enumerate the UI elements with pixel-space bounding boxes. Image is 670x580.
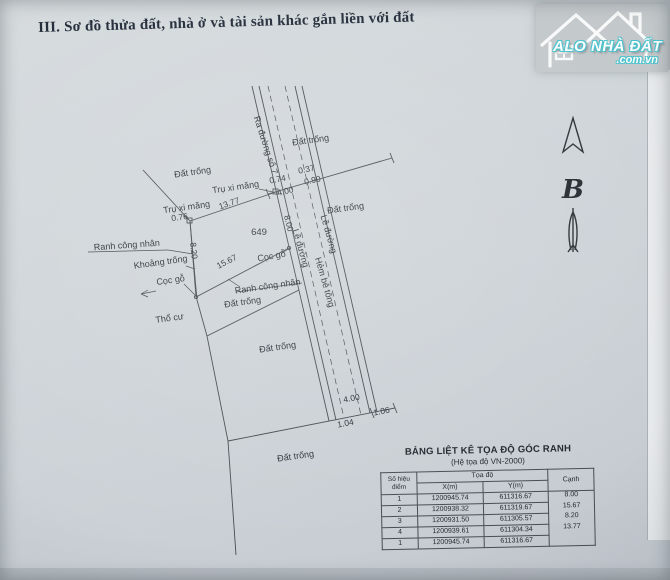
cell-point: 2 — [381, 505, 417, 517]
coordinate-table: Số hiệu điểm Tọa độ Cạnh X(m) Y(m) 1 120… — [380, 468, 596, 550]
label-tru-xi-mang: Trụ xi măng — [212, 179, 260, 195]
measure-8-00: 8.00 — [282, 214, 296, 233]
col-header-point: Số hiệu điểm — [381, 472, 418, 495]
measure-1-06: 1.06 — [372, 405, 390, 418]
label-dat-trong: Đất trống — [224, 295, 262, 310]
label-ra-duong-so-7: Ra đường số 7 — [252, 115, 280, 176]
edge-value: 13.77 — [552, 522, 593, 533]
measure-0-76: 0.76 — [171, 211, 189, 223]
measure-13-77: 13.77 — [217, 195, 241, 211]
boundary-lines — [143, 170, 299, 555]
label-dat-trong: Đất trống — [327, 201, 365, 216]
label-coc-go: Cọc gỗ — [257, 249, 287, 264]
label-coc-go: Cọc gỗ — [156, 273, 186, 287]
label-tho-cu: Thổ cư — [155, 311, 185, 325]
scanned-land-document: III. Sơ đồ thửa đất, nhà ở và tài sản kh… — [0, 0, 670, 580]
label-dat-trong: Đất trống — [277, 449, 315, 464]
cell-point: 1 — [382, 538, 418, 550]
measure-0-74: 0.74 — [268, 173, 286, 186]
measure-1-04: 1.04 — [336, 417, 354, 430]
label-dat-trong: Đất trống — [259, 340, 297, 355]
cell-y: 611316.67 — [484, 535, 550, 547]
measure-8-20: 8.20 — [188, 242, 200, 260]
cell-point: 4 — [382, 527, 418, 539]
cell-point: 3 — [382, 516, 418, 528]
cell-point: 1 — [381, 494, 417, 506]
edge-lengths-cell: 8.00 15.67 8.20 13.77 — [548, 490, 595, 546]
cell-x: 1200945.74 — [418, 537, 484, 549]
label-le-duong: Lề đường — [291, 228, 311, 269]
north-label: B — [561, 175, 584, 205]
label-dat-trong: Đất trống — [174, 165, 212, 180]
label-ranh-cong-nhan: Ranh công nhân — [234, 276, 301, 295]
col-header-edge: Cạnh — [548, 468, 594, 491]
measure-15-67: 15.67 — [215, 252, 239, 271]
parcel-number: 649 — [251, 227, 267, 238]
measure-0-37: 0.37 — [297, 162, 316, 175]
measure-0-90: 0.90 — [303, 173, 322, 186]
label-hem-be-tong: Hẻm bê tông — [313, 256, 337, 308]
label-khoang-trong: Khoảng trống — [133, 253, 188, 270]
label-dat-trong: Đất trống — [292, 133, 330, 148]
measure-4-00: 4.00 — [276, 184, 295, 198]
coordinate-table-block: BẢNG LIỆT KÊ TỌA ĐỘ GÓC RANH (Hệ tọa độ … — [381, 445, 595, 548]
